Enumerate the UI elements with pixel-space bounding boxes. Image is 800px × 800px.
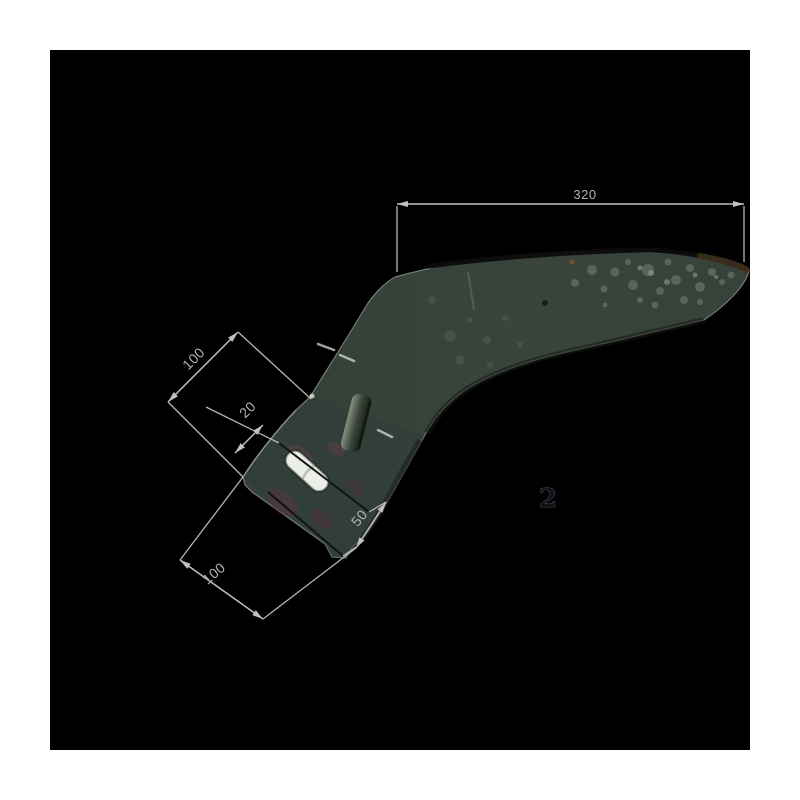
- dimension-label-320: 320: [573, 187, 596, 202]
- blade-red-speck: [570, 260, 575, 265]
- blade-dark-speck: [542, 300, 548, 306]
- part-number-label: 2: [539, 484, 557, 514]
- product-image-page: 320 100 20 50 100: [0, 0, 800, 800]
- product-technical-image: 320 100 20 50 100: [0, 0, 800, 800]
